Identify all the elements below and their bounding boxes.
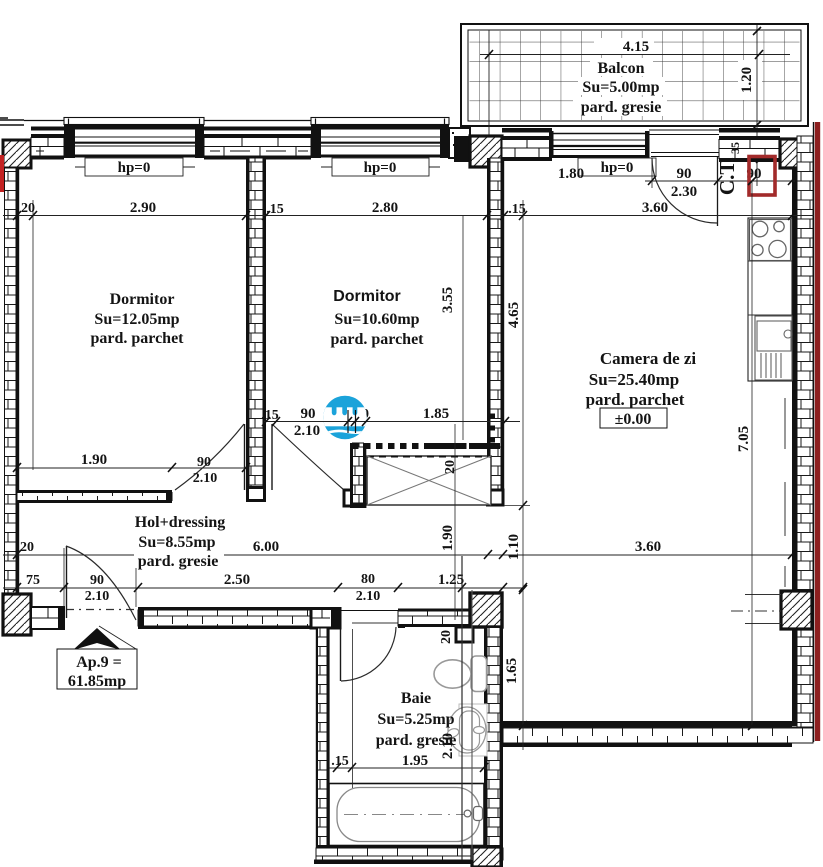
svg-text:2.50: 2.50 <box>224 572 250 588</box>
svg-text:61.85mp: 61.85mp <box>68 673 126 690</box>
svg-text:Camera de zi: Camera de zi <box>600 349 697 368</box>
svg-text:2.10: 2.10 <box>85 589 110 604</box>
svg-text:80: 80 <box>361 572 375 587</box>
svg-text:Su=5.00mp: Su=5.00mp <box>582 79 659 96</box>
svg-text:3.60: 3.60 <box>642 200 668 216</box>
svg-text:Su=5.25mp: Su=5.25mp <box>377 711 454 728</box>
svg-text:20: 20 <box>439 630 454 644</box>
svg-text:hp=0: hp=0 <box>118 160 151 176</box>
svg-text:Su=10.60mp: Su=10.60mp <box>334 311 419 328</box>
svg-text:hp=0: hp=0 <box>364 160 397 176</box>
svg-text:1.65: 1.65 <box>504 658 520 684</box>
svg-text:Su=25.40mp: Su=25.40mp <box>589 370 679 389</box>
svg-text:35: 35 <box>728 142 742 154</box>
svg-text:Ap.9 =: Ap.9 = <box>76 654 122 671</box>
svg-text:Dormitor: Dormitor <box>110 291 175 308</box>
svg-text:1.80: 1.80 <box>558 166 584 182</box>
svg-text:1.85: 1.85 <box>423 406 449 422</box>
svg-text:Hol+dressing: Hol+dressing <box>135 514 226 531</box>
svg-text:90: 90 <box>197 455 211 470</box>
svg-text:Dormitor: Dormitor <box>333 288 401 305</box>
svg-text:C.T.: C.T. <box>715 157 739 195</box>
svg-text:20: 20 <box>21 201 35 216</box>
svg-text:±0.00: ±0.00 <box>615 411 652 428</box>
svg-text:90: 90 <box>90 573 104 588</box>
svg-text:Balcon: Balcon <box>597 60 644 77</box>
svg-text:7.05: 7.05 <box>736 426 752 452</box>
svg-text:20: 20 <box>20 540 34 555</box>
svg-text:pard. parchet: pard. parchet <box>586 390 685 409</box>
svg-text:Baie: Baie <box>401 690 431 707</box>
svg-text:.15: .15 <box>331 754 349 769</box>
svg-text:Su=8.55mp: Su=8.55mp <box>138 534 215 551</box>
svg-text:2.10: 2.10 <box>294 423 320 439</box>
svg-text:2.10: 2.10 <box>193 471 218 486</box>
svg-text:2.30: 2.30 <box>671 184 697 200</box>
svg-text:6.00: 6.00 <box>253 539 279 555</box>
svg-text:1.25: 1.25 <box>438 572 464 588</box>
svg-text:1.90: 1.90 <box>440 525 456 551</box>
svg-text:3.55: 3.55 <box>440 287 456 313</box>
svg-text:1.20: 1.20 <box>739 67 755 93</box>
svg-text:pard. gresie: pard. gresie <box>376 732 457 749</box>
svg-text:.15: .15 <box>261 408 279 423</box>
svg-text:2.10: 2.10 <box>356 589 381 604</box>
svg-text:4.15: 4.15 <box>623 39 649 55</box>
svg-text:1.95: 1.95 <box>402 753 428 769</box>
svg-text:2.90: 2.90 <box>130 200 156 216</box>
svg-text:4.65: 4.65 <box>506 302 522 328</box>
svg-text:2.80: 2.80 <box>372 200 398 216</box>
svg-text:3.60: 3.60 <box>635 539 661 555</box>
svg-text:pard. parchet: pard. parchet <box>330 331 424 348</box>
svg-text:1.90: 1.90 <box>81 452 107 468</box>
svg-text:hp=0: hp=0 <box>601 160 634 176</box>
svg-text:pard. gresie: pard. gresie <box>581 99 662 116</box>
svg-text:90: 90 <box>677 166 692 182</box>
svg-text:75: 75 <box>26 573 40 588</box>
svg-text:pard. parchet: pard. parchet <box>90 330 184 347</box>
svg-text:pard. gresie: pard. gresie <box>138 553 219 570</box>
svg-text:.15: .15 <box>266 202 284 217</box>
svg-text:1.10: 1.10 <box>506 534 522 560</box>
svg-text:90: 90 <box>301 406 316 422</box>
svg-text:20: 20 <box>443 460 458 474</box>
svg-text:Su=12.05mp: Su=12.05mp <box>94 311 179 328</box>
